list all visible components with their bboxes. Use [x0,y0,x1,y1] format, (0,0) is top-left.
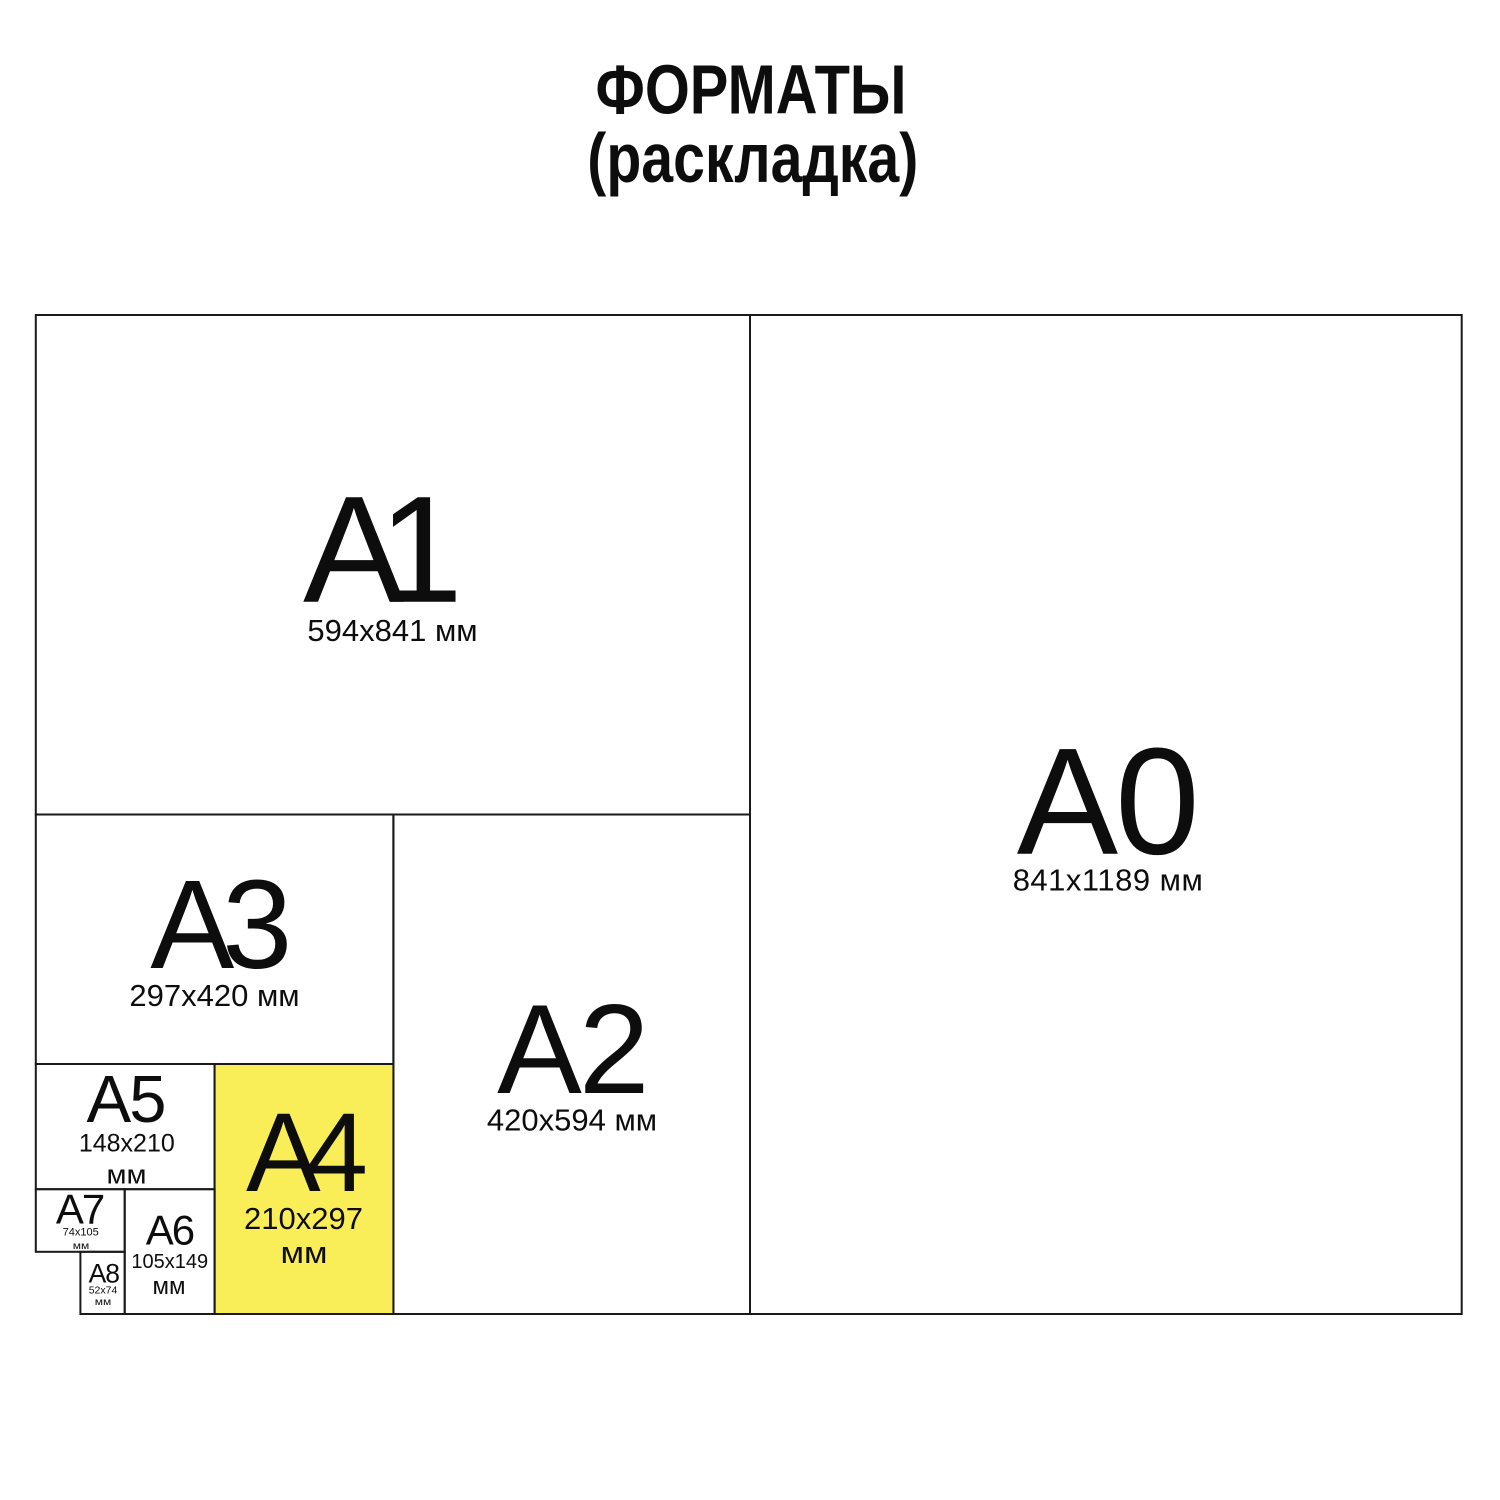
svg-text:A7: A7 [56,1186,104,1233]
svg-text:A0: A0 [1017,717,1197,887]
svg-text:ФОРМАТЫ: ФОРМАТЫ [596,51,907,129]
svg-text:мм: мм [95,1296,112,1308]
svg-text:мм: мм [107,1159,147,1189]
svg-text:841x1189 мм: 841x1189 мм [1013,863,1204,898]
svg-text:A3: A3 [150,854,287,995]
svg-text:A2: A2 [497,978,646,1120]
svg-text:105x149: 105x149 [131,1251,208,1273]
svg-text:(раскладка): (раскладка) [587,119,918,197]
svg-text:A5: A5 [87,1062,165,1137]
svg-text:A1: A1 [303,465,456,635]
svg-text:594x841 мм: 594x841 мм [307,613,477,648]
svg-text:420x594 мм: 420x594 мм [487,1103,657,1138]
svg-text:мм: мм [73,1240,90,1252]
svg-text:52x74: 52x74 [89,1285,118,1297]
svg-text:74x105: 74x105 [63,1227,99,1239]
svg-text:A4: A4 [246,1090,366,1215]
svg-text:мм: мм [281,1236,328,1270]
svg-text:148x210: 148x210 [79,1130,175,1158]
svg-text:мм: мм [153,1273,186,1300]
svg-text:210x297: 210x297 [244,1201,363,1236]
svg-text:297x420 мм: 297x420 мм [129,978,299,1013]
svg-text:A6: A6 [146,1207,194,1254]
